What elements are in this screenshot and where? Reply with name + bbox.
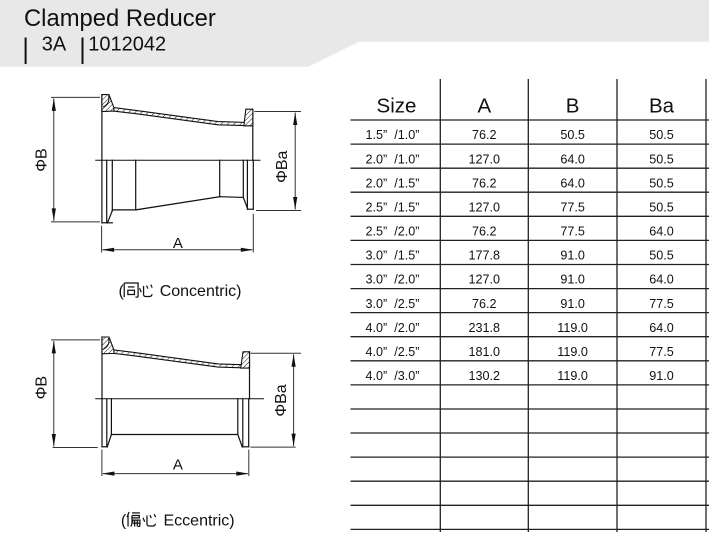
- svg-text:4.0” /2.0”: 4.0” /2.0”: [366, 321, 420, 335]
- svg-text:50.5: 50.5: [649, 249, 674, 263]
- svg-text:76.2: 76.2: [472, 128, 497, 142]
- svg-text:77.5: 77.5: [649, 297, 674, 311]
- svg-text:Ba: Ba: [649, 95, 675, 118]
- svg-text:(: (: [119, 283, 125, 300]
- svg-text:76.2: 76.2: [472, 297, 497, 311]
- svg-text:A: A: [173, 457, 183, 474]
- svg-text:64.0: 64.0: [649, 273, 674, 287]
- svg-text:50.5: 50.5: [649, 201, 674, 215]
- svg-text:91.0: 91.0: [560, 273, 585, 287]
- svg-text:177.8: 177.8: [469, 249, 501, 263]
- svg-text:181.0: 181.0: [469, 345, 501, 359]
- svg-text:127.0: 127.0: [469, 273, 501, 287]
- svg-text:1.5” /1.0”: 1.5” /1.0”: [366, 128, 420, 142]
- svg-text:3.0” /2.0”: 3.0” /2.0”: [366, 273, 420, 287]
- svg-text:1012042: 1012042: [88, 34, 166, 56]
- svg-text:50.5: 50.5: [649, 176, 674, 190]
- svg-text:77.5: 77.5: [649, 345, 674, 359]
- svg-text:50.5: 50.5: [649, 152, 674, 166]
- svg-text:76.2: 76.2: [472, 176, 497, 190]
- svg-text:127.0: 127.0: [469, 201, 501, 215]
- svg-text:(: (: [121, 513, 127, 530]
- svg-text:Clamped Reducer: Clamped Reducer: [24, 5, 216, 32]
- svg-text:ΦBa: ΦBa: [274, 150, 291, 182]
- svg-text:76.2: 76.2: [472, 225, 497, 239]
- svg-text:2.5” /2.0”: 2.5” /2.0”: [366, 225, 420, 239]
- svg-text:3A: 3A: [42, 34, 67, 56]
- svg-text:119.0: 119.0: [557, 345, 588, 359]
- svg-text:B: B: [566, 95, 580, 118]
- svg-text:2.0” /1.0”: 2.0” /1.0”: [366, 152, 420, 166]
- svg-text:64.0: 64.0: [649, 321, 674, 335]
- svg-text:119.0: 119.0: [557, 369, 588, 383]
- svg-text:50.5: 50.5: [560, 128, 585, 142]
- svg-text:3.0” /2.5”: 3.0” /2.5”: [366, 297, 420, 311]
- svg-text:Size: Size: [377, 95, 417, 118]
- svg-text:127.0: 127.0: [469, 152, 501, 166]
- svg-text:Concentric): Concentric): [160, 283, 242, 300]
- svg-text:A: A: [173, 235, 183, 252]
- svg-text:Eccentric): Eccentric): [164, 513, 235, 530]
- svg-text:130.2: 130.2: [469, 369, 501, 383]
- svg-text:231.8: 231.8: [469, 321, 501, 335]
- svg-text:91.0: 91.0: [560, 249, 585, 263]
- svg-text:A: A: [477, 95, 491, 118]
- svg-text:119.0: 119.0: [557, 321, 588, 335]
- svg-text:ΦB: ΦB: [34, 376, 51, 399]
- svg-text:77.5: 77.5: [560, 201, 585, 215]
- svg-text:64.0: 64.0: [649, 225, 674, 239]
- svg-text:2.0” /1.5”: 2.0” /1.5”: [366, 176, 420, 190]
- svg-text:4.0” /3.0”: 4.0” /3.0”: [366, 369, 420, 383]
- svg-text:64.0: 64.0: [560, 176, 585, 190]
- svg-text:91.0: 91.0: [560, 297, 585, 311]
- svg-text:4.0” /2.5”: 4.0” /2.5”: [366, 345, 420, 359]
- svg-text:ΦB: ΦB: [33, 148, 50, 171]
- svg-text:3.0” /1.5”: 3.0” /1.5”: [366, 249, 420, 263]
- svg-text:2.5” /1.5”: 2.5” /1.5”: [366, 201, 420, 215]
- svg-text:77.5: 77.5: [560, 225, 585, 239]
- svg-text:ΦBa: ΦBa: [273, 384, 290, 416]
- svg-text:50.5: 50.5: [649, 128, 674, 142]
- svg-text:64.0: 64.0: [560, 152, 585, 166]
- svg-text:91.0: 91.0: [649, 369, 674, 383]
